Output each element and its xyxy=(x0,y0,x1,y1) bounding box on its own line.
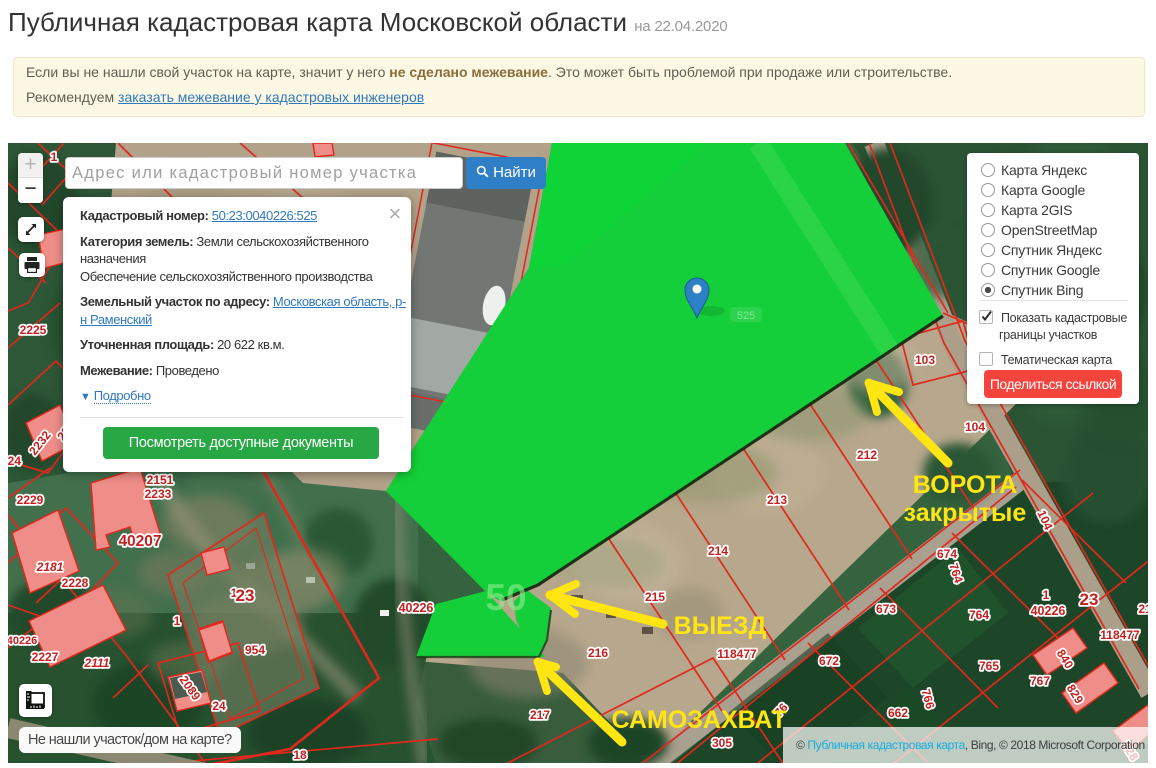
svg-text:1: 1 xyxy=(51,150,58,164)
svg-text:2227: 2227 xyxy=(32,650,59,664)
svg-text:1: 1 xyxy=(1043,588,1050,602)
svg-text:525: 525 xyxy=(737,310,755,322)
svg-text:21: 21 xyxy=(1138,602,1148,616)
svg-text:765: 765 xyxy=(979,659,999,673)
svg-text:118477: 118477 xyxy=(1100,628,1140,642)
svg-text:672: 672 xyxy=(819,654,839,668)
svg-text:764: 764 xyxy=(969,608,989,622)
svg-text:214: 214 xyxy=(708,544,728,558)
svg-text:18: 18 xyxy=(293,748,307,762)
svg-text:2111: 2111 xyxy=(84,656,110,670)
svg-text:662: 662 xyxy=(888,706,908,720)
svg-text:40226: 40226 xyxy=(1031,604,1066,618)
svg-text:2151: 2151 xyxy=(147,473,174,487)
svg-text:2225: 2225 xyxy=(20,323,47,337)
svg-text:217: 217 xyxy=(530,708,550,722)
svg-text:118477: 118477 xyxy=(717,647,757,661)
svg-text:50: 50 xyxy=(485,577,526,618)
svg-text:224: 224 xyxy=(8,454,21,468)
svg-text:23: 23 xyxy=(236,586,255,605)
svg-text:673: 673 xyxy=(876,602,896,616)
svg-text:216: 216 xyxy=(588,646,608,660)
svg-text:1: 1 xyxy=(174,614,181,628)
svg-text:2229: 2229 xyxy=(17,493,44,507)
svg-text:212: 212 xyxy=(857,448,877,462)
svg-text:213: 213 xyxy=(767,493,787,507)
svg-text:САМОЗАХВАТ: САМОЗАХВАТ xyxy=(611,706,786,734)
svg-text:40226: 40226 xyxy=(8,635,37,647)
svg-text:954: 954 xyxy=(245,643,265,657)
svg-text:767: 767 xyxy=(1030,674,1050,688)
svg-text:ВОРОТА: ВОРОТА xyxy=(913,471,1017,499)
svg-text:2228: 2228 xyxy=(62,576,89,590)
svg-text:674: 674 xyxy=(937,547,957,561)
svg-text:2181: 2181 xyxy=(36,560,64,574)
svg-text:104: 104 xyxy=(965,420,985,434)
svg-text:23: 23 xyxy=(1080,590,1099,609)
svg-text:24: 24 xyxy=(212,699,226,713)
svg-text:215: 215 xyxy=(645,590,665,604)
svg-text:закрытые: закрытые xyxy=(904,499,1027,527)
svg-text:40207: 40207 xyxy=(118,533,161,550)
svg-text:305: 305 xyxy=(712,736,732,750)
svg-text:40226: 40226 xyxy=(399,601,434,615)
svg-text:2233: 2233 xyxy=(145,487,172,501)
svg-text:103: 103 xyxy=(915,353,935,367)
svg-text:ВЫЕЗД: ВЫЕЗД xyxy=(674,612,767,640)
